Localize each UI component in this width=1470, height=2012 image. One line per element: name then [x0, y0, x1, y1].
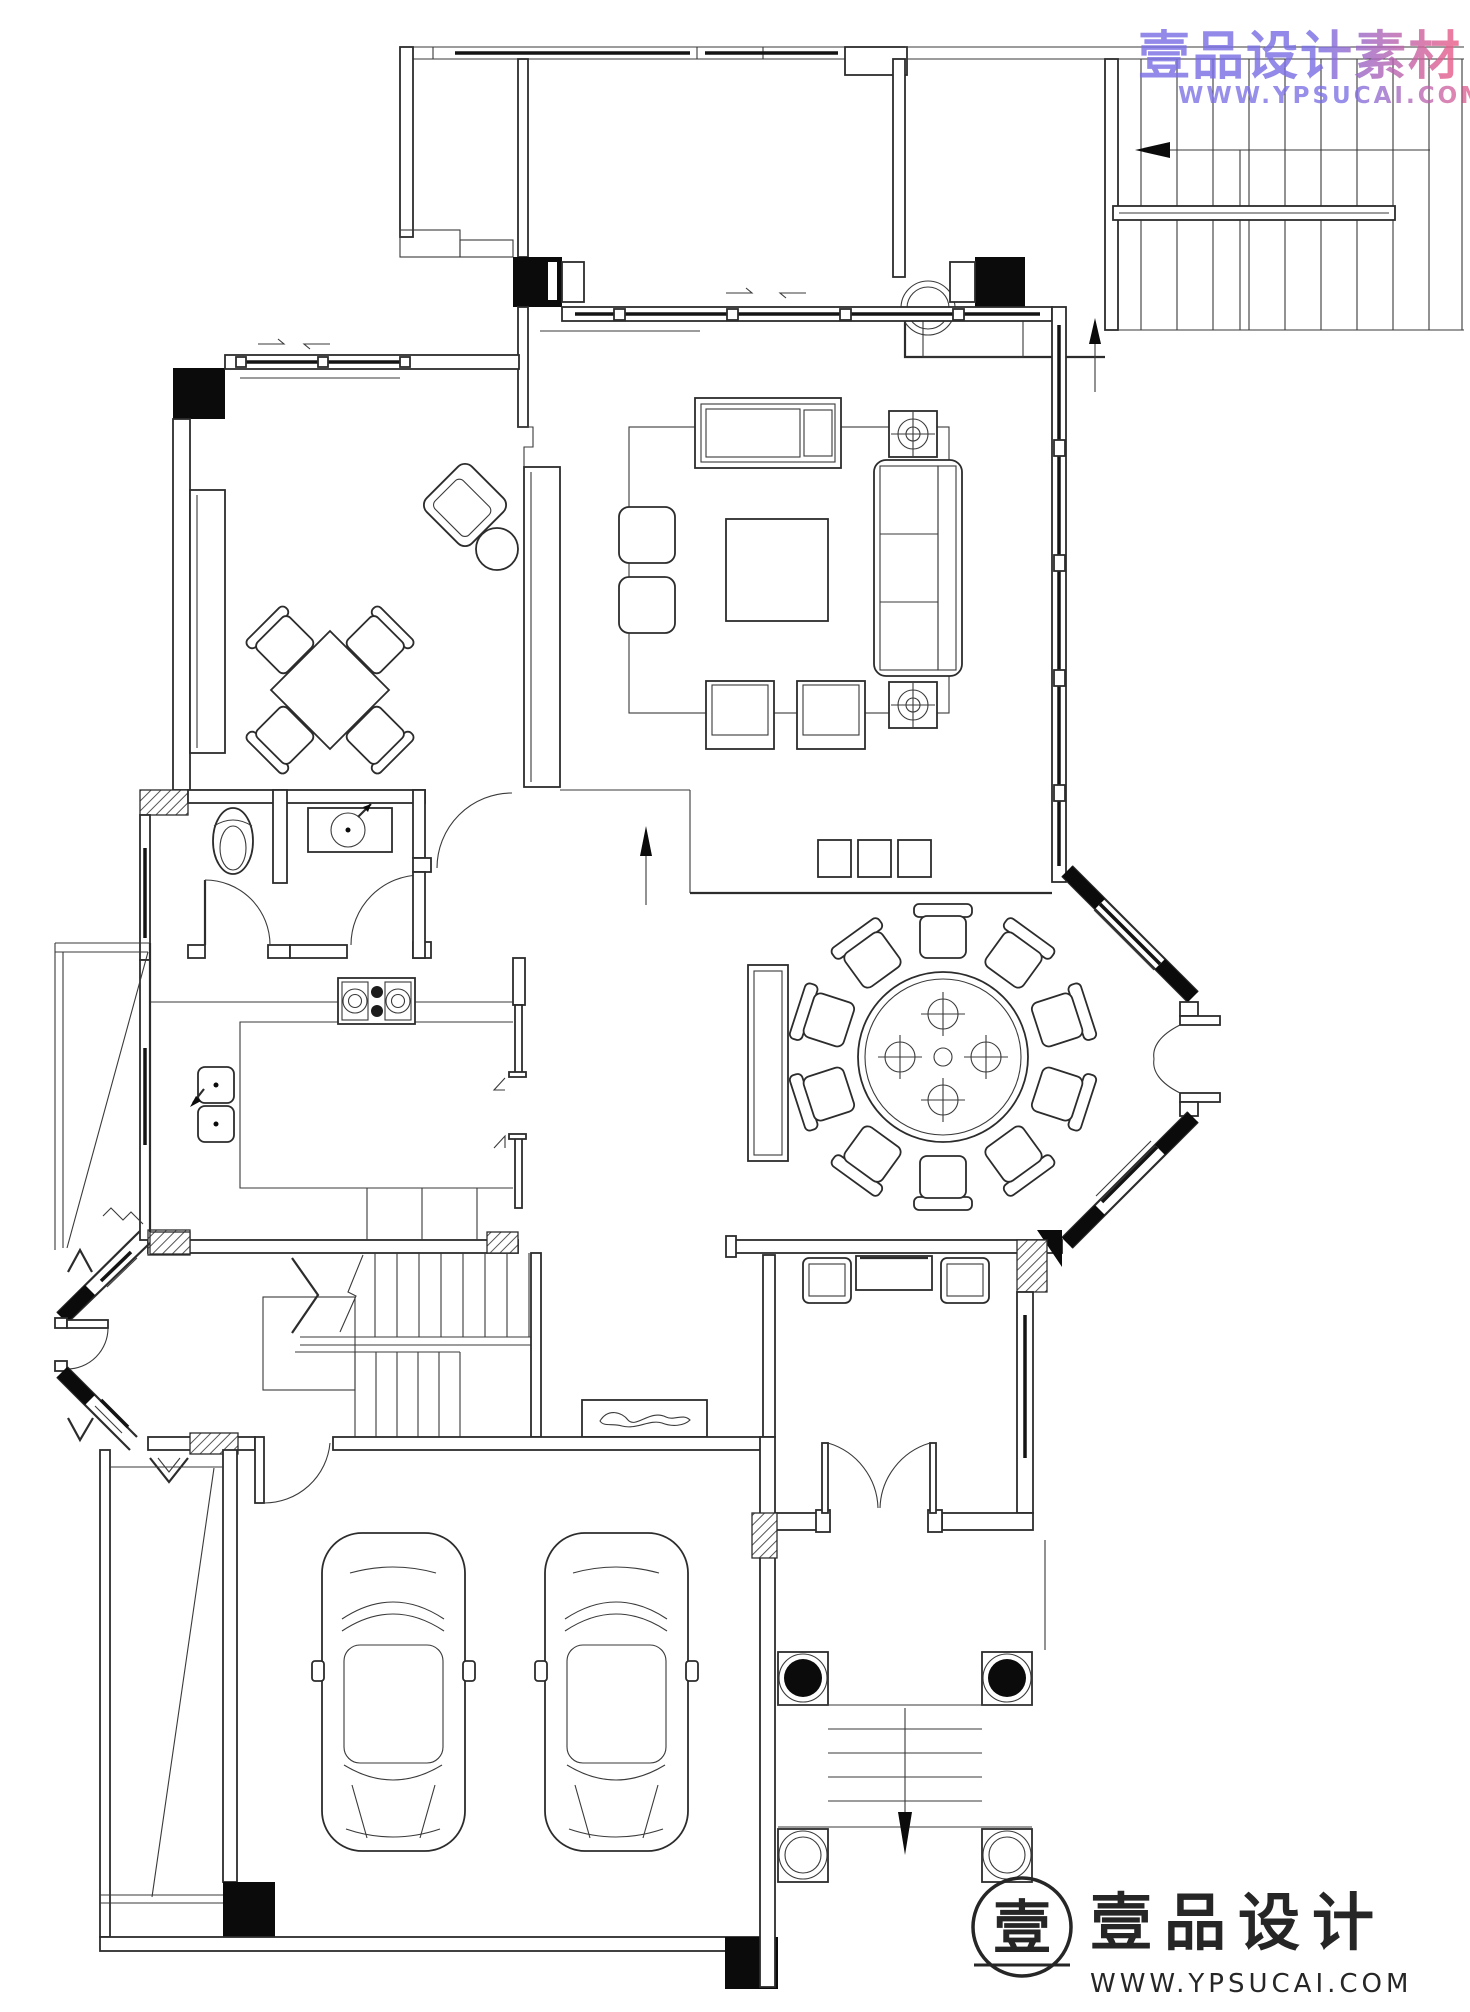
ottoman — [619, 507, 675, 563]
cabinet — [190, 490, 225, 753]
casement-arrow-icon — [726, 288, 752, 293]
wall-hatch — [487, 1232, 518, 1253]
dining-room — [748, 904, 1097, 1210]
dining-chair — [789, 982, 858, 1054]
floor-plan-canvas: 壹品设计素材 WWW.YPSUCAI.COM 壹 壹品设计 WWW.YPSUCA… — [0, 0, 1470, 2012]
double-garage — [100, 1433, 778, 1989]
dining-chair — [830, 916, 909, 994]
east-bay-window — [1062, 866, 1220, 1248]
side-table — [889, 411, 937, 457]
wall-hatch — [752, 1513, 777, 1558]
double-sink — [190, 1067, 234, 1142]
door-swing-arrow — [494, 1136, 505, 1148]
logo-url: WWW.YPSUCAI.COM — [1090, 1969, 1412, 1999]
dining-chair — [978, 1120, 1057, 1198]
level-marker — [150, 1458, 188, 1482]
car — [312, 1533, 475, 1851]
down-arrow — [898, 1812, 912, 1855]
tea-room — [173, 339, 519, 790]
sideboard — [748, 965, 788, 1161]
casement-arrow-icon — [304, 344, 330, 349]
entry-double-door — [775, 1443, 1033, 1532]
side-table — [889, 682, 937, 728]
door-leaf — [67, 1320, 108, 1328]
logo-name: 壹品设计 — [1090, 1886, 1386, 1959]
ottoman — [619, 577, 675, 633]
wash-basin — [308, 804, 392, 852]
dining-chair — [914, 1156, 972, 1210]
up-arrow — [1089, 318, 1101, 344]
armchair — [797, 681, 865, 749]
sliding-door-leaf — [515, 1138, 522, 1208]
partition-wall — [273, 790, 287, 883]
column — [223, 1882, 275, 1937]
dining-chair — [789, 1060, 858, 1132]
sofa — [874, 460, 962, 676]
entry-hall — [582, 1230, 1062, 1532]
bathroom — [140, 790, 512, 960]
dining-chair — [914, 904, 972, 958]
wall-hatch — [150, 1232, 190, 1254]
logo-symbol: 壹 — [993, 1894, 1051, 1962]
round-side-table — [476, 528, 518, 570]
window-marker — [68, 1418, 93, 1440]
shoe-cabinet — [582, 1400, 707, 1437]
column — [975, 257, 1025, 307]
kitchen — [140, 958, 526, 1255]
door-swing-arrow — [494, 1078, 505, 1090]
watermark-title: 壹品设计素材 — [1138, 27, 1462, 87]
dining-chair — [1028, 1060, 1097, 1132]
sliding-door-leaf — [515, 1005, 522, 1075]
brand-logo: 壹 壹品设计 WWW.YPSUCAI.COM — [973, 1878, 1412, 1999]
daybed — [695, 398, 841, 468]
toilet — [213, 808, 253, 874]
casement-arrow-icon — [258, 339, 284, 344]
porch-column — [988, 1659, 1026, 1697]
molding — [103, 1208, 143, 1224]
side-yard — [55, 943, 150, 1250]
console-table — [856, 1256, 932, 1290]
coffee-table — [726, 519, 828, 621]
dining-chair — [830, 1120, 909, 1198]
watermark-url: WWW.YPSUCAI.COM — [1178, 83, 1470, 109]
stair-direction-arrow — [1135, 142, 1170, 158]
watermark: 壹品设计素材 WWW.YPSUCAI.COM — [1138, 27, 1470, 109]
wall-hatch — [1017, 1240, 1047, 1292]
gas-stove — [338, 978, 415, 1024]
window-marker — [68, 1250, 92, 1272]
roof-terrace — [400, 47, 907, 257]
porch-column — [784, 1659, 822, 1697]
column — [173, 368, 225, 419]
armchair — [706, 681, 774, 749]
hall-wall — [763, 1255, 775, 1437]
casement-arrow-icon — [780, 293, 806, 298]
entry-porch — [778, 1540, 1045, 1882]
door-leaf — [1180, 1016, 1220, 1025]
hall-chair — [941, 1258, 989, 1303]
door-leaf — [255, 1437, 264, 1503]
wall-hatch — [140, 790, 188, 815]
door-leaf — [1180, 1093, 1220, 1102]
break-line — [340, 1255, 363, 1332]
living-room — [513, 257, 1066, 905]
stair-arrow — [292, 1258, 318, 1333]
floor-arrow — [640, 826, 652, 856]
dining-chair — [1028, 982, 1097, 1054]
dining-chair — [978, 916, 1057, 994]
car — [535, 1533, 698, 1851]
stair-hall — [263, 1253, 541, 1437]
hall-chair — [803, 1258, 851, 1303]
tv-cabinet — [524, 467, 560, 787]
